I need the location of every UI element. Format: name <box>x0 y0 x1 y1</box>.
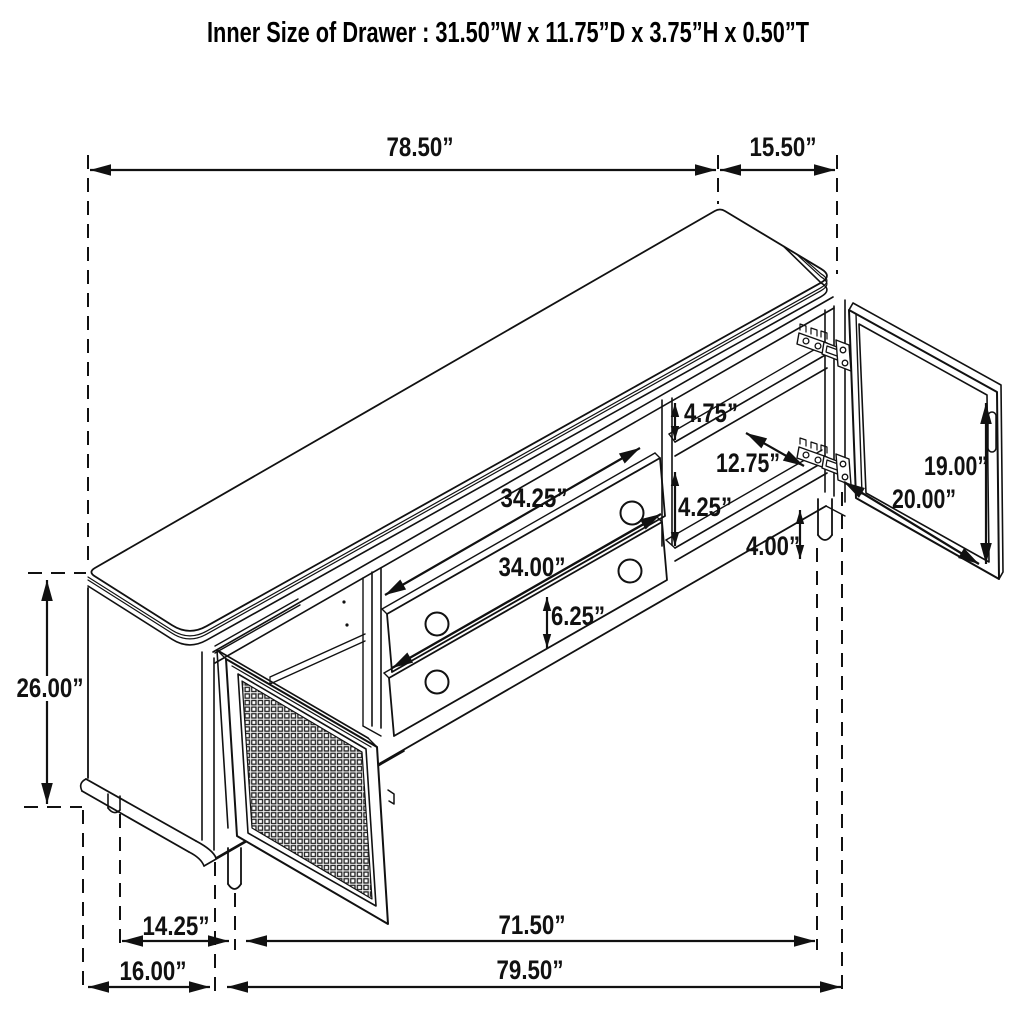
svg-text:34.25”: 34.25” <box>501 483 568 513</box>
svg-text:78.50”: 78.50” <box>387 132 454 162</box>
svg-text:26.00”: 26.00” <box>17 673 84 703</box>
svg-text:12.75”: 12.75” <box>716 448 780 478</box>
svg-text:Inner Size of Drawer : 31.50”W: Inner Size of Drawer : 31.50”W x 11.75”D… <box>207 17 809 49</box>
svg-text:19.00”: 19.00” <box>924 451 988 481</box>
svg-text:6.25”: 6.25” <box>551 601 605 631</box>
svg-text:4.00”: 4.00” <box>746 531 800 561</box>
svg-text:14.25”: 14.25” <box>143 911 210 941</box>
svg-text:20.00”: 20.00” <box>892 484 956 514</box>
svg-text:34.00”: 34.00” <box>499 552 566 582</box>
svg-text:79.50”: 79.50” <box>497 955 564 985</box>
svg-text:4.75”: 4.75” <box>684 398 738 428</box>
svg-text:15.50”: 15.50” <box>750 132 817 162</box>
svg-text:16.00”: 16.00” <box>120 956 187 986</box>
svg-text:4.25”: 4.25” <box>678 492 732 522</box>
svg-text:71.50”: 71.50” <box>499 910 566 940</box>
